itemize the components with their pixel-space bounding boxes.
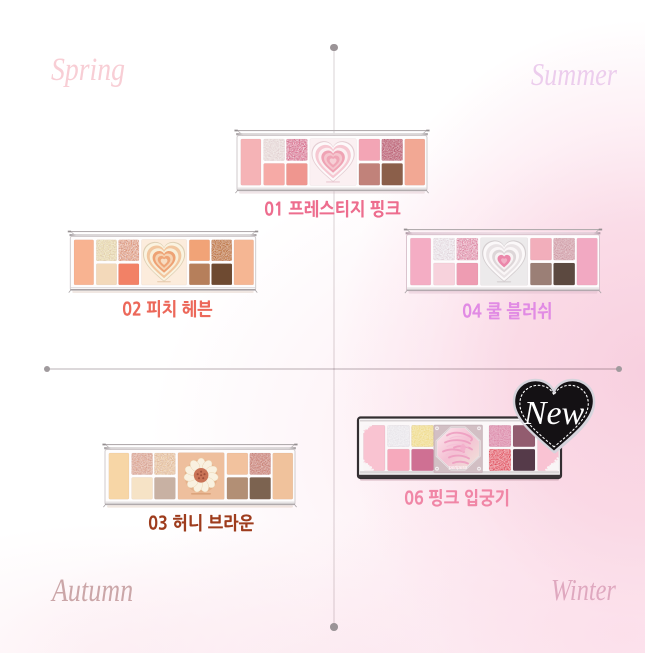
svg-text:peripera: peripera (447, 465, 467, 471)
svg-text:New: New (523, 395, 585, 432)
